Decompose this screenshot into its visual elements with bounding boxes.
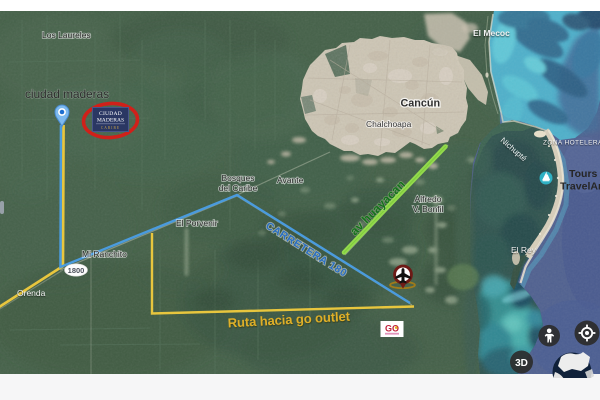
svg-text:Cancún: Cancún — [401, 98, 441, 110]
svg-text:Chalchoapa: Chalchoapa — [366, 119, 412, 129]
svg-text:1800: 1800 — [68, 266, 85, 275]
svg-text:El Porvenir: El Porvenir — [176, 218, 218, 228]
svg-text:MADERAS: MADERAS — [97, 118, 124, 124]
svg-text:Orenda: Orenda — [17, 288, 46, 298]
svg-text:TravelArt: TravelArt — [560, 181, 600, 193]
svg-text:ZONA HOTELERA: ZONA HOTELERA — [543, 140, 600, 147]
svg-text:CIUDAD: CIUDAD — [99, 111, 122, 117]
svg-text:ciudad maderas: ciudad maderas — [25, 87, 109, 101]
svg-text:Los Laureles: Los Laureles — [42, 30, 91, 40]
svg-text:del Caribe: del Caribe — [219, 183, 258, 193]
svg-text:CARIBE: CARIBE — [101, 126, 120, 130]
svg-text:El Rey: El Rey — [511, 245, 537, 255]
svg-text:El Mecoc: El Mecoc — [473, 28, 510, 38]
svg-text:3D: 3D — [515, 358, 528, 369]
svg-text:V. Bonfil: V. Bonfil — [413, 204, 444, 214]
svg-text:Alfredo: Alfredo — [415, 194, 442, 204]
svg-text:Tours &: Tours & — [569, 168, 600, 180]
svg-text:Bosques: Bosques — [221, 173, 254, 183]
svg-text:Mi Ranchito: Mi Ranchito — [82, 249, 127, 259]
svg-text:Avante: Avante — [277, 175, 304, 185]
